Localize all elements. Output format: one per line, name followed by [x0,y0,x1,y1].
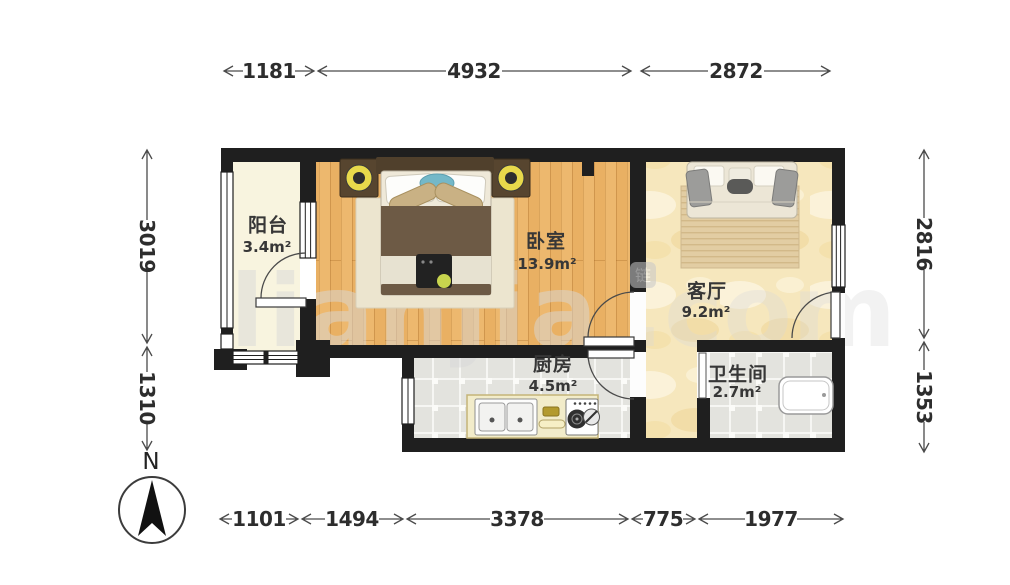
bedroom-balcony-window [300,202,316,258]
north-compass [119,477,185,543]
sofa-group [681,162,799,268]
kitchen-window [402,378,414,424]
dim-bottom-5: 1977 [744,507,798,531]
dim-bottom-2: 1494 [325,507,379,531]
watermark-logo-char: 链 [635,266,651,285]
room-area-kitchen: 4.5m² [529,377,578,395]
balcony-bottom-window [233,351,298,364]
dim-left-1: 3019 [135,219,159,273]
balcony-left-window [221,172,233,349]
wall-bottom [403,438,845,452]
room-label-kitchen: 厨房 [533,350,573,377]
room-label-living-room: 客厅 [687,277,727,304]
living-room-window [832,225,845,287]
sofa-table-item [727,179,753,194]
dim-left-2: 1310 [135,371,159,425]
kitchen-counter-group [467,395,600,438]
bed-group [340,157,530,308]
room-area-bedroom: 13.9m² [517,255,576,273]
watermark-suffix: .com [626,253,896,370]
dim-top-2: 4932 [447,59,501,83]
room-area-bathroom: 2.7m² [713,383,762,401]
room-label-balcony: 阳台 [248,211,288,238]
blanket [381,206,491,256]
north-label: N [142,449,159,475]
room-label-bedroom: 卧室 [526,227,566,254]
room-area-balcony: 3.4m² [243,238,292,256]
dim-bottom-4: 775 [643,507,683,531]
watermark-logo: 链 [630,262,656,288]
bathtub-group [779,377,833,414]
floor-plan-drawing: lianjia .com [0,0,1010,585]
dim-top-1: 1181 [242,59,296,83]
dim-right-1: 2816 [912,217,936,271]
faucet [543,407,559,416]
room-area-living-room: 9.2m² [682,303,731,321]
floor-plan-canvas: lianjia .com [0,0,1010,585]
dim-bottom-3: 3378 [490,507,544,531]
dim-top-3: 2872 [709,59,763,83]
bathroom-door [699,353,706,398]
dim-right-2: 1353 [912,370,936,424]
dim-bottom-1: 1101 [232,507,286,531]
